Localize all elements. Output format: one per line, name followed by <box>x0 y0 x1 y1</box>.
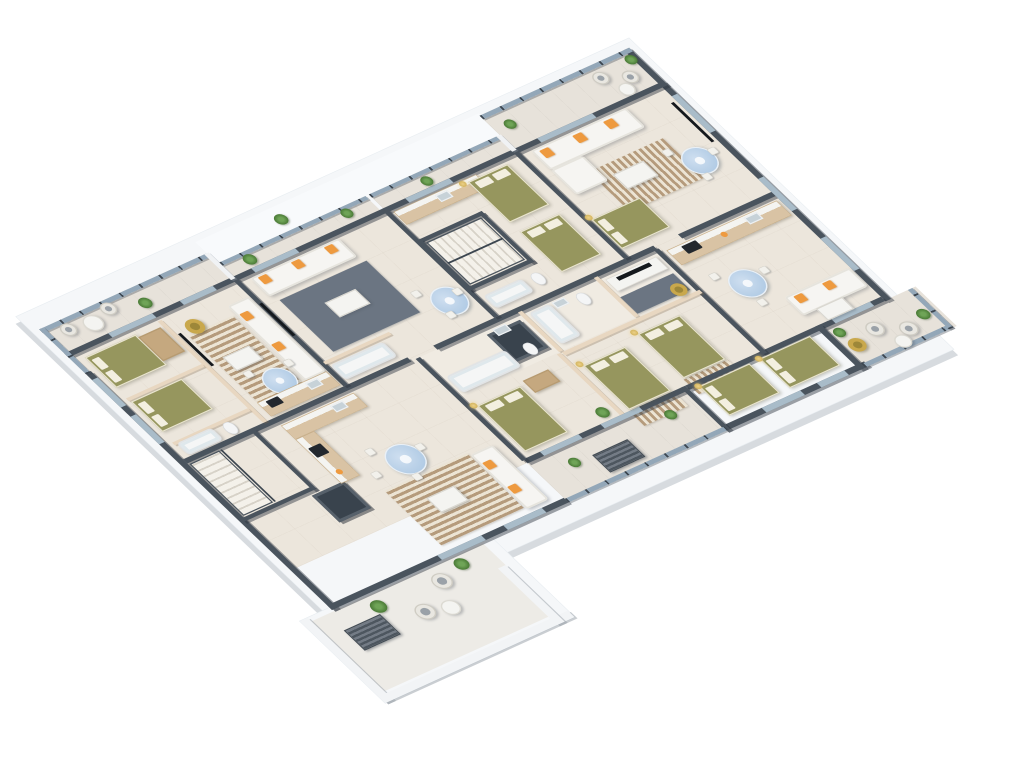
apartment-floor-plan-isometric <box>0 21 1024 707</box>
floorplan-render-stage <box>0 0 1024 768</box>
